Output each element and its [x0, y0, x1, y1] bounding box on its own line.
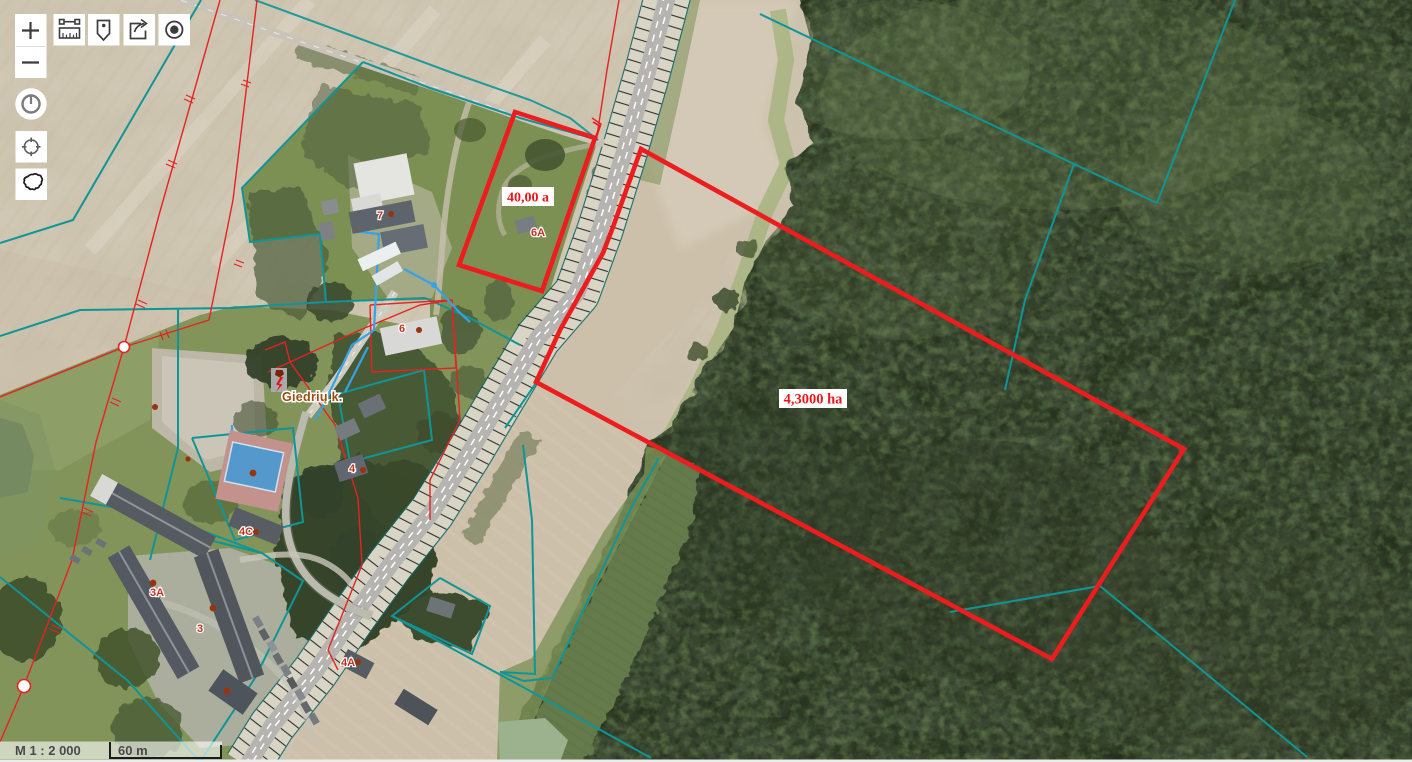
svg-text:4: 4: [349, 463, 356, 475]
svg-text:40,00 a: 40,00 a: [507, 191, 549, 206]
svg-text:6: 6: [399, 323, 405, 335]
svg-text:4C: 4C: [239, 526, 253, 538]
svg-text:4A: 4A: [341, 657, 355, 669]
svg-text:Giedrių k.: Giedrių k.: [282, 390, 343, 404]
svg-text:7: 7: [377, 210, 383, 222]
svg-text:3: 3: [197, 623, 203, 635]
svg-text:6A: 6A: [531, 227, 545, 239]
svg-text:4,3000 ha: 4,3000 ha: [784, 392, 844, 408]
svg-text:M 1 : 2 000: M 1 : 2 000: [15, 743, 81, 758]
svg-text:60 m: 60 m: [118, 743, 148, 758]
svg-text:3A: 3A: [150, 587, 164, 599]
